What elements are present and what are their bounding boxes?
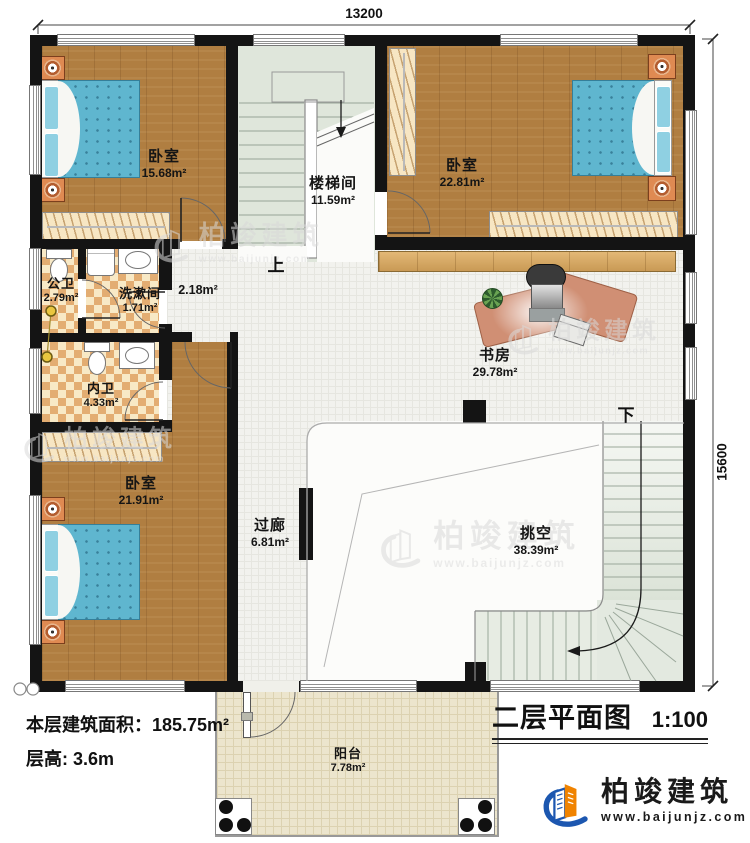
stairs-down-flight-bottom	[475, 610, 597, 681]
room-area: 2.18m²	[178, 283, 218, 298]
room-name: 洗漱间	[119, 286, 161, 302]
room-area: 4.33m²	[84, 397, 119, 410]
stairs-down-label: 下	[618, 401, 635, 426]
stairwell-floor	[238, 46, 375, 262]
room-name: 书房	[473, 347, 518, 365]
bookshelf	[378, 251, 676, 272]
wall-segment	[30, 239, 180, 249]
room-label-void: 挑空 38.39m²	[514, 525, 559, 557]
room-label-public-bath: 公卫 2.79m²	[44, 276, 79, 305]
floor-area-text: 本层建筑面积：185.75m²	[26, 711, 229, 737]
room-area: 2.79m²	[44, 292, 79, 305]
title-underline	[492, 738, 708, 744]
balcony-post-right	[458, 798, 495, 835]
window	[29, 348, 41, 414]
bed-pillow	[44, 575, 59, 617]
room-area: 6.81m²	[251, 535, 289, 549]
room-area: 11.59m²	[309, 193, 357, 207]
room-area: 1.71m²	[119, 302, 161, 315]
room-label-stairwell: 楼梯间 11.59m²	[309, 175, 357, 207]
plant	[482, 288, 503, 309]
toilet-bowl	[88, 351, 106, 375]
window	[57, 34, 195, 46]
window	[253, 34, 345, 46]
wardrobe	[42, 212, 170, 240]
room-area: 38.39m²	[514, 543, 559, 557]
window	[65, 680, 185, 692]
wall-segment	[222, 239, 238, 249]
wall-segment	[375, 35, 387, 192]
balcony-post-left	[215, 798, 252, 835]
nightstand	[40, 178, 65, 202]
room-name: 公卫	[44, 276, 79, 292]
nightstand	[40, 56, 65, 80]
balcony-door-handle	[241, 712, 253, 721]
stairs-up-label: 上	[268, 251, 285, 276]
room-label-washroom: 洗漱间 1.71m²	[119, 286, 161, 315]
room-area: 29.78m²	[473, 365, 518, 379]
wall-segment	[30, 333, 172, 342]
nightstand	[40, 497, 65, 521]
room-name: 楼梯间	[309, 175, 357, 193]
room-label-bedroom-tr: 卧室 22.81m²	[440, 157, 485, 189]
wardrobe	[389, 48, 416, 176]
sink-basin	[125, 251, 151, 269]
room-area: 22.81m²	[440, 175, 485, 189]
brand-logo: 柏竣建筑 www.baijunjz.com	[540, 772, 747, 830]
room-label-corridor: 过廊 6.81m²	[251, 517, 289, 549]
room-name: 卧室	[142, 148, 187, 166]
room-label-bedroom-bl: 卧室 21.91m²	[119, 475, 164, 507]
room-area: 7.78m²	[331, 762, 366, 775]
window	[500, 34, 638, 46]
window	[29, 85, 41, 175]
stairs-down-fan	[597, 600, 684, 681]
plan-scale: 1:100	[652, 707, 708, 733]
landing-area-label: 2.18m²	[178, 283, 218, 298]
bedroom-bl-entry-floor	[172, 342, 227, 432]
column	[299, 488, 313, 560]
door-opening	[243, 681, 299, 692]
nightstand	[648, 176, 676, 201]
bed-pillow	[656, 131, 671, 173]
nightstand	[648, 54, 676, 79]
window	[685, 347, 697, 400]
wall-segment	[159, 324, 172, 333]
brand-website: www.baijunjz.com	[601, 810, 747, 824]
footer-stats: 本层建筑面积：185.75m² 层高: 3.6m	[26, 711, 229, 771]
plan-title: 二层平面图	[492, 696, 632, 735]
column	[465, 662, 486, 681]
wardrobe	[42, 432, 162, 462]
window	[300, 680, 417, 692]
wall-segment	[78, 249, 86, 279]
sink-basin	[125, 347, 149, 364]
window	[685, 272, 697, 324]
window	[29, 248, 41, 310]
wall-segment	[227, 342, 238, 681]
wall-segment	[230, 332, 238, 342]
room-area: 21.91m²	[119, 493, 164, 507]
bed-pillow	[656, 86, 671, 128]
wall-segment	[159, 249, 172, 290]
bed-pillow	[44, 133, 59, 177]
title-block: 二层平面图 1:100	[492, 696, 708, 744]
floor-plan: 柏竣建筑www.baijunjz.com 柏竣建筑www.baijunjz.co…	[0, 0, 750, 843]
brand-logo-icon	[540, 772, 594, 830]
bed-pillow	[44, 86, 59, 130]
room-label-balcony: 阳台 7.78m²	[331, 746, 366, 775]
wall-segment	[226, 35, 238, 249]
room-name: 阳台	[331, 746, 366, 762]
wall-segment	[375, 237, 695, 250]
room-name: 卧室	[440, 157, 485, 175]
dimension-height-label: 15600	[715, 443, 730, 481]
bed-pillow	[44, 530, 59, 572]
room-label-bedroom-tl: 卧室 15.68m²	[142, 148, 187, 180]
wall-segment	[78, 318, 86, 333]
room-name: 过廊	[251, 517, 289, 535]
room-label-study: 书房 29.78m²	[473, 347, 518, 379]
wardrobe	[489, 211, 678, 239]
wall-segment	[30, 422, 172, 432]
room-name: 挑空	[514, 525, 559, 543]
window	[490, 680, 640, 692]
room-area: 15.68m²	[142, 166, 187, 180]
brand-name: 柏竣建筑	[601, 778, 747, 806]
window	[685, 110, 697, 235]
washing-machine	[87, 246, 115, 276]
column	[463, 400, 486, 423]
room-name: 内卫	[84, 381, 119, 397]
room-label-private-bath: 内卫 4.33m²	[84, 381, 119, 410]
wall-segment	[159, 342, 172, 380]
stairs-down-flight-right	[603, 421, 684, 600]
nightstand	[40, 620, 65, 644]
room-name: 卧室	[119, 475, 164, 493]
wall-segment	[172, 332, 192, 342]
window	[29, 495, 41, 645]
floor-height-text: 层高: 3.6m	[26, 745, 229, 771]
dimension-width-label: 13200	[345, 6, 383, 21]
